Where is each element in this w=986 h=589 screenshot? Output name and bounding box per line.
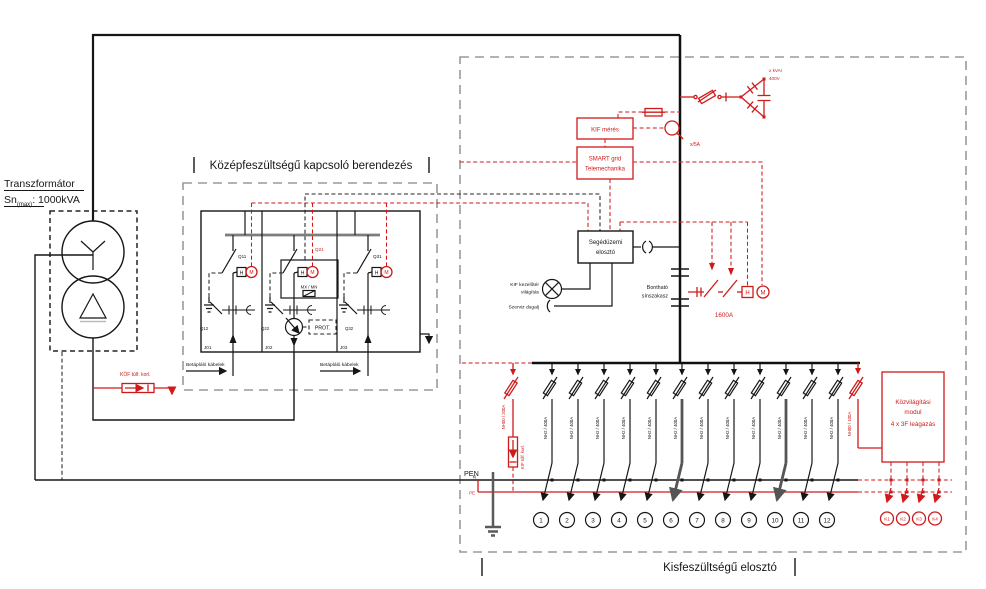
cap-switch-pivot [694,95,697,98]
feeder-1: NH2 / 400A1 [534,363,558,528]
cap-voltage-label: 400V [769,76,781,81]
feeder-bus-arrow [575,369,581,376]
k-number: K3 [916,517,922,522]
feeder-n-tap [733,479,736,482]
bay3-cable-arrow [365,334,372,343]
feeder-number: 6 [669,517,673,524]
lighting-output-1: K1 [881,462,894,525]
bay3-ct-symbols [357,306,390,315]
feeder-number: 11 [798,517,805,524]
bay2-relay-label: MX / MN [301,285,318,290]
feeder-fuse-diagonal [829,377,843,399]
feeder-bus-arrow [679,369,685,376]
socket-label: Szerviz dugalj [509,305,539,311]
feeder-n-tap [655,479,658,482]
bay3-earth-symbol [339,305,349,312]
lighting-label-3: 4 x 3F leágazás [891,421,935,428]
breaker-motor-dashed [633,162,762,285]
lvsa-fuse-label: NH00 / 200A [501,405,506,430]
pe-label: PE [469,491,475,496]
feeder-12: NH2 / 400A12 [820,363,844,528]
feeder-bus-arrow [757,369,763,376]
feeder-bus-arrow [731,369,737,376]
feeder-n-tap [707,479,710,482]
lighting-module-group: NH00 / 100A Közvilágítási modul 4 x 3F l… [847,363,944,525]
bay3-cable-label: Betápláló kábelek [320,362,359,368]
feeder-n-tap [577,479,580,482]
ct-ratio-label: x/5A [690,142,701,148]
mv-arrester-label: KÖF túlf. korl. [120,371,151,378]
k-n-tap [938,479,941,482]
lamp-cross [545,282,558,295]
delta-symbol [80,294,106,318]
bay2: H M Q21 MX / MN Q22 PROT. [261,235,338,352]
feeder-bus-arrow [653,369,659,376]
mv-switchgear: J01 J02 J03 H M Q11 Q12 [186,211,429,376]
feeder-8: NH2 / 400A8 [716,363,740,528]
feeder-11: NH2 / 400A11 [794,363,818,528]
breaker-blade-1 [704,280,718,297]
trip-arrow-1 [709,263,715,271]
feeder-5: NH2 / 400A5 [638,363,662,528]
bay2-breaker-arrow [286,318,299,333]
k-number: K2 [900,517,906,522]
feeder-fuse-label: NH2 / 400A [569,417,574,439]
feeder-number: 3 [591,517,595,524]
feeder-fuse-label: NH2 / 400A [777,417,782,439]
transformer-rating: Sn(max): 1000kVA [4,194,80,208]
bay1-cable-label: Betápláló kábelek [186,362,225,368]
breaker-blade-2 [723,280,737,297]
lamp-label-1: KIF kezelőtér [510,282,539,288]
lighting-output-2: K2 [897,462,910,525]
feeder-6: NH2 / 400A6 [664,363,688,528]
feeder-n-tap [629,479,632,482]
bay1-cable-arrow [230,334,237,343]
bay1-earth-label: Q12 [200,326,209,331]
mv-title: Középfeszültségű kapcsoló berendezés [210,160,413,172]
feeder-number: 12 [823,517,831,524]
pen-feed-left [35,255,93,480]
feeder-number: 1 [539,517,543,524]
feeder-fuse-label: NH2 / 400A [725,417,730,439]
feeder-number: 4 [617,517,621,524]
metering-group: KIF mérés SMART grid Telemechanika x/5A [577,109,701,180]
transformer-secondary-winding [62,276,124,338]
earth-symbol [485,527,501,536]
lv-feeders: NH2 / 400A1NH2 / 400A2NH2 / 400A3NH2 / 4… [534,363,844,528]
aux-distribution: Segédüzemi elosztó KIF kezelőtér világít… [509,231,680,312]
light-arrow [855,368,861,375]
prot-control-black-dashed [305,194,600,260]
feeder-fuse-diagonal [699,377,713,399]
bay3-id: J03 [340,345,348,350]
feeder-fuse-label: NH2 / 400A [803,417,808,439]
feeder-bus-arrow [705,369,711,376]
bay1-aux-h: H [240,270,244,276]
bus-split-label-1: Bontható [647,285,668,291]
k-n-tap [890,479,893,482]
lighting-label-2: modul [904,409,921,416]
feeder-number: 8 [721,517,725,524]
mv-surge-arrester-group: KÖF túlf. korl. [93,371,172,394]
breaker-aux-h: H [745,291,749,297]
trip-arrow-2 [728,268,734,276]
feeder-fuse-diagonal [595,377,609,399]
capacitor-bank: x kVAr 400V [680,68,783,119]
lvsa-arrow [510,369,516,376]
lighting-output-4: K4 [929,462,942,525]
bay2-coil-slash [303,291,315,297]
feeder-number: 2 [565,517,569,524]
lv-enclosure-dashed-box [460,57,966,552]
bay1-earth-symbol [204,305,214,312]
main-breaker-group: H M 1600A [688,280,769,319]
feeder-bus-arrow [809,369,815,376]
lv-title: Kisfeszültségű elosztó [663,562,777,574]
bay2-ct-symbols [283,306,316,315]
feeder-fuse-diagonal [673,377,687,399]
bay3-switch-label: Q31 [373,254,382,259]
smart-grid-box [577,147,633,179]
bay3-aux-h: H [375,270,379,276]
feeder-bus-arrow [627,369,633,376]
mv-title-group: Középfeszültségű kapcsoló berendezés [194,157,429,173]
smart-grid-label-1: SMART grid [589,157,621,163]
lv-title-group: Kisfeszültségű elosztó [482,558,795,576]
feeder-3: NH2 / 400A3 [586,363,610,528]
feeder-fuse-diagonal [803,377,817,399]
light-fuse-diagonal [849,377,863,399]
k-number: K1 [884,517,890,522]
breaker-rating: 1600A [715,312,734,319]
schematic-canvas: Középfeszültségű kapcsoló berendezés Kis… [0,0,986,589]
pen-label: PEN [464,469,479,478]
feeder-fuse-diagonal [751,377,765,399]
feeder-fuse-label: NH2 / 400A [543,417,548,439]
bay2-link [294,272,298,273]
bay1-switch-blade [222,249,236,273]
bay3: H M Q31 Q32 [339,235,392,376]
bus-split-label-2: sínszakasz [642,294,669,300]
lvsa-fuse-diagonal [504,377,518,399]
mv-cubicle-box [201,211,420,352]
bay2-switch-label: Q21 [315,247,324,252]
lighting-module-box [882,372,944,462]
lamp-label-2: világítás [521,290,539,296]
feeder-number: 10 [771,517,779,524]
feeder-bus-arrow [549,369,555,376]
feeder-number: 5 [643,517,647,524]
lighting-output-3: K3 [913,462,926,525]
bay2-switch-blade [283,249,297,273]
bay2-earth-symbol [265,305,275,312]
feeder-n-tap [681,479,684,482]
feeder-10: NH2 / 400A10 [768,363,792,528]
bay3-earth-label: Q32 [345,326,354,331]
bay2-motor-m: M [310,270,314,276]
bay1-id: J01 [204,345,212,350]
kif-meter-label: KIF mérés [591,128,619,134]
bay1-link [233,272,237,273]
single-line-diagram: Középfeszültségű kapcsoló berendezés Kis… [0,0,986,589]
meter-fuse-dashed-left [618,112,645,118]
lighting-label-1: Közvilágítási [895,399,930,406]
bay3-motor-m: M [384,270,388,276]
k-number: K4 [932,517,938,522]
cap-node-a [740,96,743,99]
cap-switch-end [718,95,721,98]
feeder-number: 7 [695,517,699,524]
feeder-fuse-diagonal [725,377,739,399]
bay3-earth-dashed [344,273,357,297]
bus-split-group: Bontható sínszakasz [642,269,689,306]
feeder-7: NH2 / 400A7 [690,363,714,528]
n-label: N [473,475,476,480]
feeder-fuse-label: NH2 / 400A [829,417,834,439]
lamp-wire [562,263,591,289]
feeder-fuse-label: NH2 / 400A [699,417,704,439]
cap-plates [747,83,770,113]
feeder-fuse-label: NH2 / 400A [751,417,756,439]
feeder-fuse-diagonal [647,377,661,399]
bay2-cb-box [281,260,338,298]
feeder-fuse-label: NH2 / 400A [673,417,678,439]
bay1-ct-symbols [222,306,255,315]
feeder-fuse-label: NH2 / 400A [621,417,626,439]
bay1-motor-m: M [249,270,253,276]
bay1-earth-dashed [209,273,222,297]
cap-node-c [763,116,766,119]
mv-arrester-earth-lead [154,388,172,394]
feeder-n-tap [759,479,762,482]
feeder-bus-arrow [783,369,789,376]
feeder-number: 9 [747,517,751,524]
cap-fuse-body [699,90,716,103]
bay2-earth-label: Q22 [261,326,270,331]
socket-wire [554,263,612,306]
cap-node-b [763,78,766,81]
feeder-bus-arrow [835,369,841,376]
feeder-bus-arrow [601,369,607,376]
feeder-fuse-diagonal [569,377,583,399]
feeder-n-tap [785,479,788,482]
bay3-switch-blade [357,249,371,273]
cap-rating-label: x kVAr [769,68,783,73]
aux-label-2: elosztó [596,250,616,256]
lv-arrester-label: KIF túlf. korl. [520,445,525,469]
feeder-9: NH2 / 400A9 [742,363,766,528]
rating-sub: (max) [17,202,32,208]
feeder-fuse-diagonal [777,377,791,399]
k-out-arrow [903,488,907,502]
breaker-left-contacts [688,287,704,297]
k-n-tap [906,479,909,482]
feeder-4: NH2 / 400A4 [612,363,636,528]
feeder-fuse-label: NH2 / 400A [595,417,600,439]
transformer-title: Transzformátor [4,178,75,190]
feeder-n-tap [811,479,814,482]
bay2-prot-label: PROT. [315,326,331,332]
light-fuse-label: NH00 / 100A [847,412,852,437]
feeder-fuse-label: NH2 / 400A [647,417,652,439]
bay2-id: J02 [265,345,273,350]
k-out-arrow [935,488,939,502]
k-out-arrow [919,488,923,502]
rating-value: : 1000kVA [32,194,80,206]
aux-label-1: Segédüzemi [589,240,622,246]
k-out-arrow [887,488,891,502]
feeder-fuse-diagonal [621,377,635,399]
bay1: H M Q11 Q12 [200,235,257,376]
breaker-motor-m: M [761,291,766,297]
bay2-feed-arrow [291,338,298,347]
k-n-tap [922,479,925,482]
bay1-switch-label: Q11 [238,254,247,259]
feeder-fuse-diagonal [543,377,557,399]
bay2-aux-h: H [301,270,305,276]
socket-icon [547,300,550,312]
rating-sn: Sn [4,194,17,206]
mv-earth-hook [420,334,429,343]
transformer-group: Transzformátor Sn(max): 1000kVA [4,178,137,351]
smart-grid-label-2: Telemechanika [585,167,626,173]
lv-surge-feeder: NH00 / 200A KIF túlf. korl. [501,363,525,492]
feeder-n-tap [837,479,840,482]
transformer-dashed-box [50,211,137,351]
aux-box [578,231,633,263]
plug-connector-icon [643,241,653,253]
feeder-n-tap [551,479,554,482]
feeder-2: NH2 / 400A2 [560,363,584,528]
feeder-n-tap [603,479,606,482]
bay3-link [368,272,372,273]
lighting-outputs: K1K2K3K4 [881,462,942,525]
